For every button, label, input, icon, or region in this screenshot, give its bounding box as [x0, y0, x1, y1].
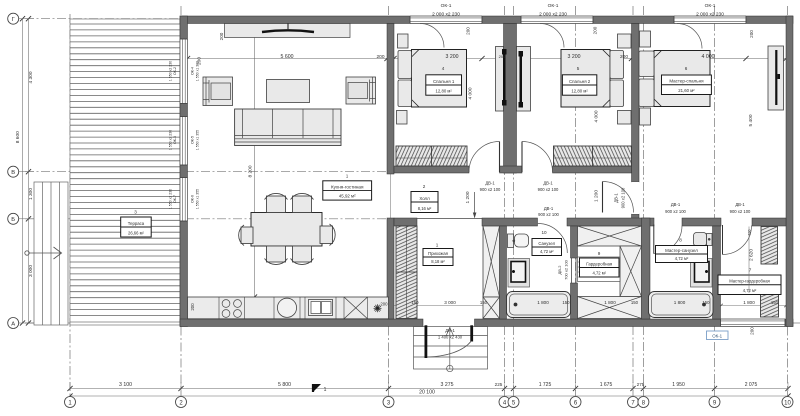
svg-text:ОК-1: ОК-1 — [712, 333, 722, 338]
svg-text:4 000: 4 000 — [702, 54, 715, 60]
svg-text:180: 180 — [748, 230, 752, 236]
svg-text:Санузел: Санузел — [538, 241, 555, 246]
svg-text:4 300: 4 300 — [28, 71, 34, 83]
svg-text:2 000 х2 230: 2 000 х2 230 — [696, 12, 724, 18]
svg-text:ОК-7: ОК-7 — [173, 195, 177, 203]
svg-text:150: 150 — [702, 300, 710, 305]
svg-text:26,66 м²: 26,66 м² — [128, 230, 145, 235]
svg-text:8,16 м²: 8,16 м² — [418, 206, 432, 211]
svg-text:1 400 х2 430: 1 400 х2 430 — [438, 335, 463, 340]
svg-text:1: 1 — [436, 243, 439, 248]
svg-text:1 550 х2 230: 1 550 х2 230 — [169, 61, 173, 81]
svg-text:200: 200 — [190, 303, 195, 311]
svg-text:9: 9 — [598, 251, 601, 256]
svg-text:10: 10 — [784, 400, 791, 406]
svg-text:Мастер-спальня: Мастер-спальня — [669, 79, 704, 84]
svg-text:1 675: 1 675 — [600, 382, 613, 388]
svg-text:3 200: 3 200 — [446, 54, 459, 60]
svg-text:ОК-1: ОК-1 — [705, 3, 716, 9]
svg-text:1 800: 1 800 — [604, 300, 616, 305]
svg-text:8 600: 8 600 — [15, 131, 21, 143]
svg-text:150: 150 — [411, 300, 419, 305]
svg-text:3 000: 3 000 — [28, 265, 34, 277]
svg-text:ОК-3: ОК-3 — [173, 136, 177, 144]
svg-text:ОК-4: ОК-4 — [191, 67, 195, 75]
svg-text:4,72 м²: 4,72 м² — [675, 256, 689, 261]
svg-text:150: 150 — [771, 300, 779, 305]
svg-text:900 х2 100: 900 х2 100 — [538, 187, 559, 192]
svg-text:21,60 м²: 21,60 м² — [678, 88, 695, 93]
svg-text:1 800: 1 800 — [743, 300, 755, 305]
svg-text:Кухня-гостиная: Кухня-гостиная — [331, 184, 364, 189]
svg-text:1 200: 1 200 — [594, 190, 600, 202]
svg-text:900 х2 100: 900 х2 100 — [730, 209, 751, 214]
svg-text:6: 6 — [685, 66, 688, 71]
svg-text:3 275: 3 275 — [441, 382, 454, 388]
svg-text:4,72 м²: 4,72 м² — [540, 249, 554, 254]
svg-text:ОК-6: ОК-6 — [191, 195, 195, 203]
svg-text:1 550 х2 230: 1 550 х2 230 — [169, 189, 173, 209]
svg-text:ДВ-1: ДВ-1 — [543, 181, 553, 186]
svg-text:200: 200 — [593, 26, 598, 34]
svg-text:150: 150 — [631, 300, 639, 305]
svg-text:700 х2 100: 700 х2 100 — [564, 259, 569, 280]
svg-text:ДВ-1: ДВ-1 — [671, 202, 681, 207]
svg-text:200: 200 — [749, 30, 754, 38]
svg-text:Б: Б — [11, 217, 15, 223]
svg-text:5 800: 5 800 — [278, 382, 291, 388]
svg-text:ДВ-1: ДВ-1 — [614, 193, 619, 203]
svg-text:3 000: 3 000 — [444, 300, 456, 305]
svg-text:1 950: 1 950 — [672, 382, 685, 388]
svg-text:2 000 х2 230: 2 000 х2 230 — [539, 12, 567, 18]
svg-text:150: 150 — [562, 300, 570, 305]
svg-text:900 х2 100: 900 х2 100 — [480, 187, 501, 192]
svg-text:10: 10 — [541, 230, 547, 235]
svg-text:Холл: Холл — [419, 196, 430, 201]
svg-text:200: 200 — [620, 54, 628, 60]
svg-text:275: 275 — [637, 382, 645, 387]
svg-text:200: 200 — [750, 327, 755, 335]
svg-text:1 800: 1 800 — [674, 300, 686, 305]
svg-text:Прихожая: Прихожая — [428, 251, 449, 256]
svg-text:А: А — [11, 321, 15, 327]
svg-text:Мастер-санузел: Мастер-санузел — [665, 248, 698, 253]
svg-text:3 200: 3 200 — [568, 54, 581, 60]
svg-text:2 075: 2 075 — [745, 382, 758, 388]
svg-text:4,72 м²: 4,72 м² — [743, 288, 757, 293]
svg-text:8,18 м²: 8,18 м² — [431, 259, 445, 264]
svg-text:900 х2 100: 900 х2 100 — [665, 209, 686, 214]
svg-text:3 100: 3 100 — [119, 382, 132, 388]
svg-text:5: 5 — [577, 66, 580, 71]
svg-text:5 400: 5 400 — [748, 114, 754, 126]
svg-text:2 620: 2 620 — [749, 249, 755, 261]
svg-text:5 600: 5 600 — [281, 54, 294, 60]
svg-text:Терраса: Терраса — [128, 221, 145, 226]
svg-text:4 000: 4 000 — [594, 110, 600, 122]
svg-text:Спальня 1: Спальня 1 — [433, 79, 455, 84]
svg-text:ДН-1: ДН-1 — [445, 328, 455, 333]
svg-text:200: 200 — [197, 57, 203, 65]
svg-text:1: 1 — [324, 387, 327, 393]
svg-text:20 100: 20 100 — [419, 390, 435, 396]
svg-text:8 200: 8 200 — [248, 165, 254, 177]
svg-text:150: 150 — [480, 300, 488, 305]
svg-text:4: 4 — [442, 66, 445, 71]
svg-text:ДВ-1: ДВ-1 — [544, 206, 554, 211]
svg-text:ОК-2: ОК-2 — [173, 67, 177, 75]
svg-text:В: В — [11, 170, 15, 176]
svg-text:3: 3 — [134, 210, 137, 215]
svg-text:2: 2 — [423, 184, 426, 189]
svg-text:45,92 м²: 45,92 м² — [339, 194, 356, 199]
svg-text:4 000: 4 000 — [468, 87, 474, 99]
svg-text:200: 200 — [466, 27, 471, 35]
svg-text:1 550 х2 230: 1 550 х2 230 — [169, 130, 173, 150]
svg-text:1 550 х1 355: 1 550 х1 355 — [196, 130, 200, 150]
svg-text:200: 200 — [376, 54, 384, 60]
svg-text:1 550 х1 355: 1 550 х1 355 — [196, 189, 200, 209]
svg-text:ДВ-1: ДВ-1 — [485, 181, 495, 186]
svg-text:12,80 м²: 12,80 м² — [435, 89, 452, 94]
svg-text:2 000 х2 230: 2 000 х2 230 — [432, 12, 460, 18]
svg-text:1 200: 1 200 — [465, 191, 471, 203]
svg-text:900 х2 100: 900 х2 100 — [538, 212, 559, 217]
svg-text:ДВ-2: ДВ-2 — [557, 265, 562, 275]
svg-text:200: 200 — [380, 302, 388, 307]
svg-text:1 725: 1 725 — [539, 382, 552, 388]
svg-text:ДВ-1: ДВ-1 — [735, 202, 745, 207]
svg-text:Мастер-гардеробная: Мастер-гардеробная — [729, 279, 770, 284]
svg-text:12,80 м²: 12,80 м² — [571, 89, 588, 94]
svg-text:200: 200 — [499, 54, 506, 59]
svg-text:ОК-1: ОК-1 — [548, 3, 559, 9]
svg-text:1 800: 1 800 — [537, 300, 549, 305]
svg-text:ОК-1: ОК-1 — [441, 3, 452, 9]
svg-text:Спальня 2: Спальня 2 — [569, 79, 591, 84]
svg-text:Гардеробная: Гардеробная — [586, 261, 613, 266]
svg-text:900 х2 100: 900 х2 100 — [621, 187, 626, 208]
svg-text:200: 200 — [219, 32, 224, 40]
svg-text:4,72 м²: 4,72 м² — [592, 270, 606, 275]
svg-text:225: 225 — [495, 382, 503, 387]
svg-text:8: 8 — [679, 238, 682, 243]
svg-text:ОК-5: ОК-5 — [191, 136, 195, 144]
svg-text:1 300: 1 300 — [28, 188, 34, 200]
